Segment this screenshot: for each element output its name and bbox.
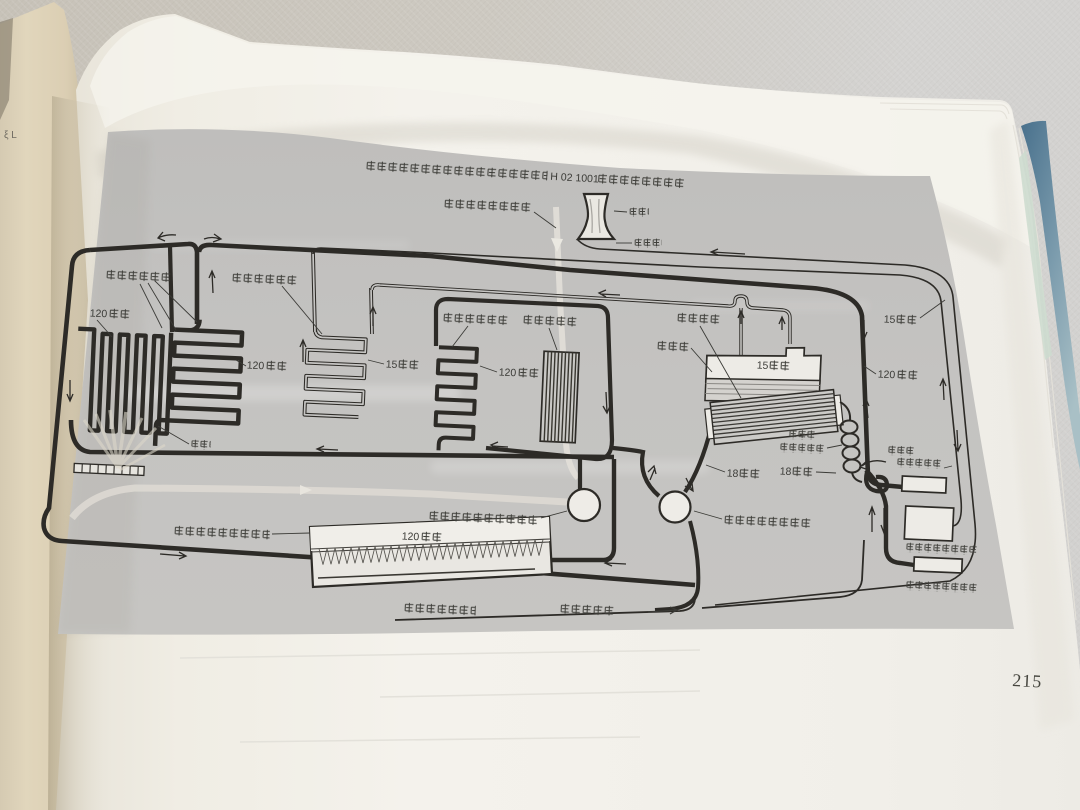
svg-text:120: 120 (246, 359, 264, 372)
svg-text:15: 15 (756, 359, 768, 372)
svg-text:120: 120 (877, 368, 895, 381)
svg-text:18: 18 (779, 465, 791, 478)
svg-text:18: 18 (726, 467, 738, 480)
svg-text:120: 120 (89, 307, 107, 320)
svg-text:120: 120 (401, 530, 419, 543)
svg-text:ξ L: ξ L (4, 130, 17, 141)
svg-text:15: 15 (385, 358, 397, 371)
svg-text:215: 215 (1012, 670, 1043, 692)
svg-text:120: 120 (498, 366, 516, 379)
svg-text:15: 15 (883, 313, 895, 326)
